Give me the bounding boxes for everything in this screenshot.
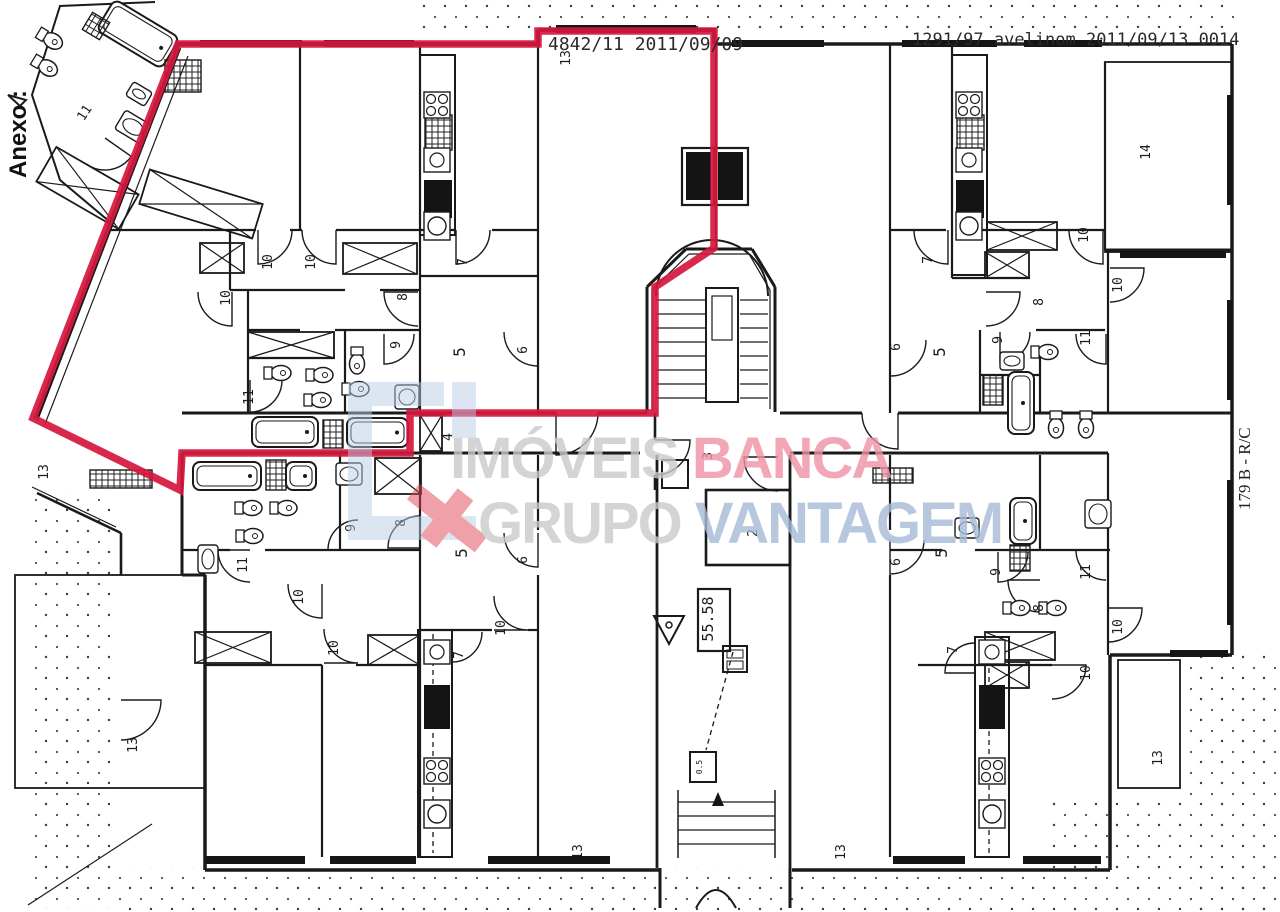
toilet-tank — [1050, 411, 1062, 419]
toilet — [235, 501, 262, 516]
room-label: 10 — [1079, 665, 1094, 681]
toilet — [1031, 345, 1058, 360]
toilet — [306, 368, 333, 383]
toilet — [264, 366, 291, 381]
toilet — [350, 347, 365, 374]
room-label: 55.58 — [699, 596, 717, 641]
toilet — [304, 393, 331, 408]
room-label: 9 — [991, 336, 1006, 344]
hatch-rect — [266, 460, 286, 490]
kitchen-dark-unit — [686, 152, 711, 200]
toilet-tank — [235, 502, 243, 514]
room-label: 5 — [930, 347, 949, 357]
toilet — [270, 501, 297, 516]
cooktop — [979, 758, 1005, 784]
hatched-fixture — [266, 460, 286, 490]
room-label: 8 — [396, 293, 411, 301]
window-sill — [1227, 95, 1233, 205]
hatch-rect — [323, 420, 343, 448]
watermark-word-imoveis: IMÓVEIS — [450, 426, 678, 491]
room-label: 13 — [126, 737, 141, 753]
room-label: 10 — [261, 254, 276, 270]
tub-drain — [305, 430, 309, 434]
cooktop — [956, 92, 982, 118]
cooktop — [424, 758, 450, 784]
hatch-rect — [425, 115, 452, 150]
toilet — [236, 529, 263, 544]
room-label: 8 — [1032, 604, 1047, 612]
room-label: 13 — [1151, 750, 1166, 766]
room-label: 13 — [37, 464, 52, 480]
room-label: 5 — [450, 347, 469, 357]
ksink-frame — [424, 148, 450, 172]
room-label: 7 — [452, 651, 467, 659]
sink — [1085, 500, 1111, 528]
ksink-frame — [424, 640, 450, 664]
room-label: 7 — [456, 258, 471, 266]
bathtub — [286, 462, 316, 490]
hatched-fixture — [983, 375, 1003, 405]
hatched-fixture — [1010, 545, 1030, 571]
room-label: 11 — [236, 557, 251, 573]
room-label: 14 — [1139, 144, 1154, 160]
room-label: 13 — [834, 844, 849, 860]
kitchen-dark-unit — [979, 685, 1005, 729]
oven — [424, 212, 450, 240]
window-sill — [1227, 300, 1233, 400]
hatch-rect — [1010, 545, 1030, 571]
room-label: 0.5 — [695, 760, 704, 775]
room-label: 10 — [1077, 227, 1092, 243]
toilet-tank — [1031, 346, 1039, 358]
room-label: 9 — [389, 341, 404, 349]
hatched-fixture — [323, 420, 343, 448]
window-sill — [1170, 650, 1228, 657]
kitchen-sink — [956, 148, 982, 172]
toilet-tank — [1080, 411, 1092, 419]
toilet-tank — [264, 367, 272, 379]
watermark-word-banca: BANCA — [692, 426, 893, 491]
hatch-rect — [957, 115, 984, 150]
anexo-side-label: Anexo : — [5, 90, 32, 178]
room-label: 6 — [516, 346, 531, 354]
room-label: 5 — [452, 548, 471, 558]
hatched-fixture — [425, 115, 452, 150]
room-label: 10 — [1111, 277, 1126, 293]
room-label: 7 — [946, 646, 961, 654]
window-sill — [1120, 251, 1226, 258]
toilet-tank — [351, 347, 363, 355]
tub-drain — [248, 474, 252, 478]
toilet-tank — [1003, 602, 1011, 614]
ksink-frame — [956, 148, 982, 172]
window-sill — [732, 40, 824, 47]
tub-drain — [1023, 519, 1027, 523]
oven — [979, 800, 1005, 828]
room-label: 10 — [1111, 619, 1126, 635]
room-label: 6 — [516, 556, 531, 564]
toilet-tank — [306, 369, 314, 381]
toilet — [1049, 411, 1064, 438]
sink — [198, 545, 218, 573]
window-sill — [1227, 480, 1233, 625]
bathtub — [193, 462, 261, 490]
room-label: 10 — [304, 254, 319, 270]
toilet-tank — [270, 502, 278, 514]
room-label: 10 — [219, 290, 234, 306]
stamp-reference-right: 1291/97 avelinom 2011/09/13 0014 — [912, 30, 1240, 50]
tub-drain — [395, 431, 399, 435]
bathtub — [1008, 372, 1034, 434]
tub-drain — [303, 474, 307, 478]
oven — [956, 212, 982, 240]
kitchen-sink — [424, 640, 450, 664]
room-label: 10 — [494, 620, 509, 636]
room-label: 7 — [921, 256, 936, 264]
floor-plan-drawing: 1314111010107895611413327101086591113119… — [0, 0, 1280, 912]
room-label: 6 — [889, 343, 904, 351]
stamp-reference-left: 4842/11 2011/09/09 — [548, 34, 743, 55]
room-label: 6 — [889, 558, 904, 566]
window-sill — [205, 856, 305, 864]
room-label: 11 — [1079, 564, 1094, 580]
room-label: 10 — [292, 589, 307, 605]
room-label: 9 — [989, 568, 1004, 576]
hatch-rect — [983, 375, 1003, 405]
window-sill — [330, 856, 416, 864]
scanned-floor-plan-page: 1314111010107895611413327101086591113119… — [0, 0, 1280, 912]
kitchen-sink — [424, 148, 450, 172]
window-sill — [1023, 856, 1101, 864]
tub-drain — [1021, 401, 1025, 405]
watermark-word-vantagem: VANTAGEM — [695, 491, 1002, 556]
lot-reference-label: 179 B - R/C — [1235, 427, 1254, 510]
toilet — [1003, 601, 1030, 616]
window-sill — [488, 856, 610, 864]
toilet-tank — [236, 530, 244, 542]
bathtub — [252, 417, 318, 447]
kitchen-dark-unit — [718, 152, 743, 200]
window-sill — [893, 856, 965, 864]
room-label: 11 — [1079, 330, 1094, 346]
room-label: 8 — [1032, 298, 1047, 306]
hatched-fixture — [957, 115, 984, 150]
svg-text:GRUPO VANTAGEM: GRUPO VANTAGEM — [478, 491, 1002, 556]
room-label: 10 — [327, 640, 342, 656]
cooktop — [424, 92, 450, 118]
kitchen-sink — [979, 640, 1005, 664]
oven — [424, 800, 450, 828]
room-label: 13 — [571, 844, 586, 860]
sink — [1000, 352, 1024, 370]
watermark-word-grupo: GRUPO — [478, 491, 681, 556]
toilet — [1079, 411, 1094, 438]
kitchen-dark-unit — [424, 685, 450, 729]
room-label: 11 — [242, 389, 257, 405]
ksink-frame — [979, 640, 1005, 664]
svg-text:IMÓVEIS BANCA: IMÓVEIS BANCA — [450, 426, 892, 491]
bathtub — [1010, 498, 1036, 544]
toilet-tank — [304, 394, 312, 406]
